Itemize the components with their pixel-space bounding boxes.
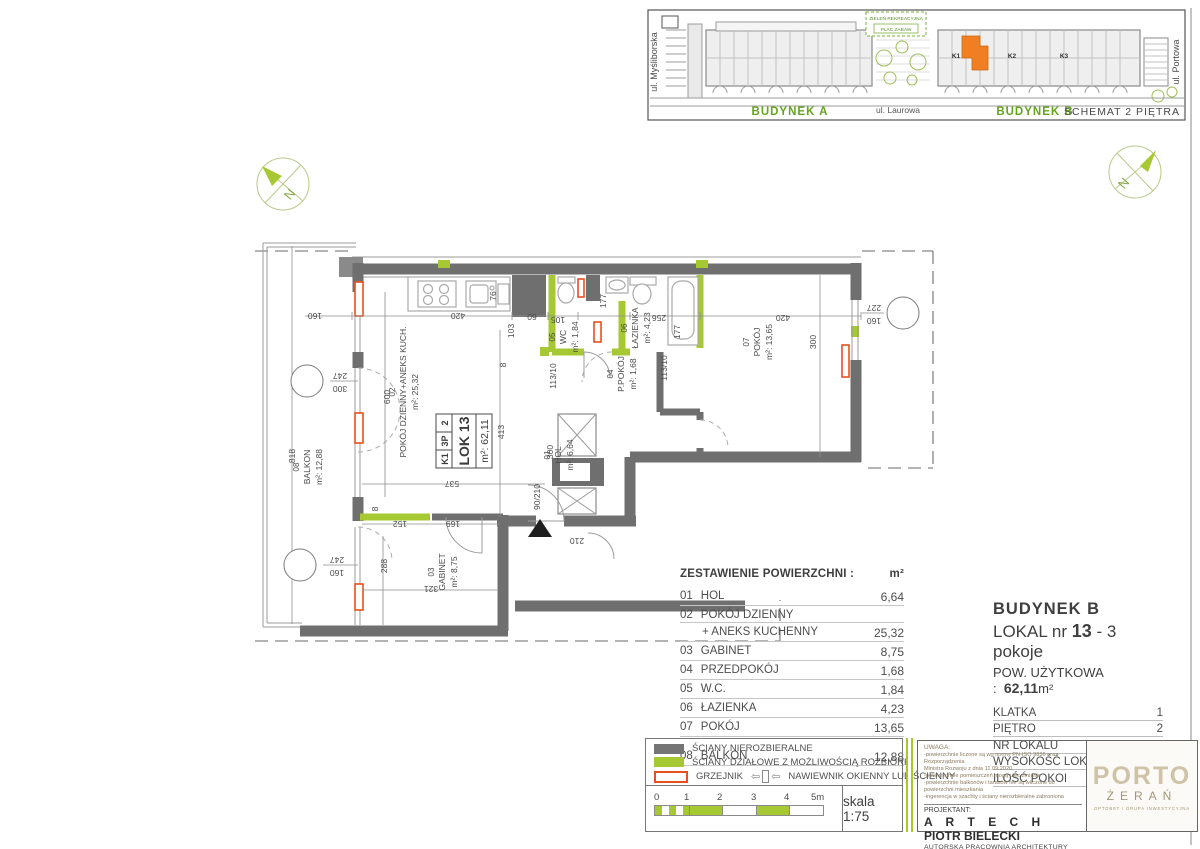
logo-line2: ŻERAŃ (1107, 789, 1178, 803)
radiator (578, 279, 584, 297)
dim-label: 152 (393, 519, 407, 529)
radiator-swatch (654, 771, 688, 783)
stair-label-k3: K3 (1060, 53, 1069, 60)
title-block: UWAGA: -powierzchnie liczone są wg normy… (917, 740, 1198, 832)
legend-item: GRZEJNIK ⇦⇦ NAWIEWNIK OKIENNY LUB ŚCIENN… (654, 770, 896, 783)
radiator (842, 345, 849, 377)
svg-text:GABINET: GABINET (437, 553, 447, 590)
north-letter: N (281, 186, 299, 203)
projektant-section: PROJEKTANT: A R T E C H PIOTR BIELECKI A… (924, 804, 1082, 849)
uwaga-line: -powierzchnie pomieszczeń mogą ulec zmia… (924, 773, 1082, 780)
street-left-label: ul. Myśliborska (649, 32, 659, 92)
logo-tagline: OPTOBET I GRUPA INWESTYCYJNA (1094, 806, 1190, 811)
scale-segments (654, 805, 824, 816)
green-divider (906, 738, 913, 832)
scale-bar: 0 1 2 3 4 5m skala 1:75 (645, 785, 903, 832)
kitchen-shaft (512, 275, 546, 317)
info-row: PIĘTRO2 (993, 721, 1163, 738)
marker-bottom: 160 (330, 568, 344, 578)
svg-text:06: 06 (620, 323, 629, 332)
svg-text:POKÓJ: POKÓJ (752, 328, 762, 357)
schemat-label: SCHEMAT 2 PIĘTRA (1064, 106, 1180, 118)
dim-label: 177 (598, 294, 608, 308)
dim-label: 113/10 (659, 355, 669, 381)
svg-text:08: 08 (292, 462, 301, 471)
dim-label: 288 (379, 559, 389, 573)
radiator (355, 584, 363, 610)
title-block-text: UWAGA: -powierzchnie liczone są wg normy… (918, 741, 1086, 831)
marker-top: 247 (333, 371, 347, 381)
dim-label: 90/210 (532, 484, 542, 510)
scale-graphic: 0 1 2 3 4 5m (646, 786, 842, 831)
dim-label: 169 (446, 519, 460, 529)
svg-text:02: 02 (388, 387, 397, 396)
wall-green-swatch (654, 757, 684, 767)
svg-text:m²: 1,68: m²: 1,68 (628, 358, 638, 389)
stair-label-k1: K1 (952, 53, 961, 60)
svg-text:m²: 25,32: m²: 25,32 (410, 374, 420, 410)
info-row: KLATKA1 (993, 704, 1163, 721)
table-row: + ANEKS KUCHENNY25,32 (680, 623, 904, 642)
svg-text:P.POKÓJ: P.POKÓJ (616, 356, 626, 392)
uwaga-line: Ministra Rozwoju z dnia 11.09.2020, (924, 766, 1082, 773)
area-table: ZESTAWIENIE POWIERZCHNI : m² 01HOL6,64 0… (680, 568, 904, 766)
radiator (355, 282, 363, 316)
north-compass-left: N (257, 158, 309, 210)
marker-bottom: 160 (867, 316, 881, 326)
svg-text:m²: 6,64: m²: 6,64 (565, 439, 575, 470)
card-k: K1 (440, 453, 450, 465)
dim-label: 321 (424, 584, 438, 594)
nawiewnik-icon: ⇦⇦ (751, 770, 780, 783)
site-building-a (706, 22, 872, 93)
info-building: BUDYNEK B (993, 600, 1163, 619)
uwaga-line: -powierzchnie balkonów i tarasów nie są … (924, 780, 1082, 794)
dim-label: 60 (527, 312, 537, 322)
room-label-living: 02 POKÓJ DZIENNY+ANEKS KUCH. m²: 25,32 (388, 326, 420, 457)
developer-logo: PORTO ŻERAŃ OPTOBET I GRUPA INWESTYCYJNA (1086, 741, 1197, 831)
svg-text:m²: 12,88: m²: 12,88 (314, 449, 324, 485)
plan-sheet: ZIELEŃ REKREACYJNA PLAC ZABAW K1 K2 K3 u… (0, 0, 1200, 849)
dim-label: 537 (445, 479, 459, 489)
legend: ŚCIANY NIEROZBIERALNE ŚCIANY DZIAŁOWE Z … (645, 738, 903, 785)
stair-label-k2: K2 (1008, 53, 1017, 60)
north-compass-right: N (1109, 146, 1161, 198)
svg-text:07: 07 (742, 337, 751, 346)
building-b-label: BUDYNEK B (996, 106, 1073, 118)
card-lok: LOK 13 (456, 416, 472, 465)
dim-label: 210 (570, 536, 584, 546)
site-green-area: ZIELEŃ REKREACYJNA PLAC ZABAW (866, 12, 926, 36)
uwaga-line: -ingerencja w szachty i ściany nierozbie… (924, 794, 1082, 801)
card-type: 3P (440, 435, 450, 446)
radiator (355, 413, 363, 443)
projektant-label: PROJEKTANT: (924, 807, 1082, 814)
dim-label: 256 (652, 313, 666, 323)
svg-text:m²: 13,65: m²: 13,65 (764, 324, 774, 360)
dim-label: 105 (551, 315, 565, 325)
unit-card: K1 3P 2 LOK 13 m²: 62,11 (436, 414, 492, 468)
svg-text:HOL: HOL (553, 446, 563, 464)
dim-label: 413 (496, 425, 506, 439)
svg-text:01: 01 (543, 450, 552, 459)
marker-top: 227 (867, 303, 881, 313)
svg-text:WC: WC (558, 330, 568, 344)
wall-gray-swatch (654, 744, 684, 754)
area-table-title: ZESTAWIENIE POWIERZCHNI : (680, 568, 854, 580)
green-area-line1: ZIELEŃ REKREACYJNA (869, 15, 923, 22)
area-table-unit: m² (890, 568, 904, 580)
svg-text:04: 04 (606, 369, 615, 378)
table-row: 01HOL6,64 (680, 587, 904, 606)
dim-label: 420 (776, 313, 790, 323)
dim-label: 113/10 (548, 363, 558, 389)
dim-label: 8 (370, 506, 380, 511)
dim-label: 160 (308, 311, 322, 321)
building-a-label: BUDYNEK A (752, 106, 829, 118)
scale-ticks: 0 1 2 3 4 5m (654, 792, 842, 804)
legend-item: ŚCIANY DZIAŁOWE Z MOŻLIWOŚCIĄ ROZBIÓRKI (654, 757, 896, 768)
dim-label: 420 (451, 311, 465, 321)
green-area-line2: PLAC ZABAW (881, 27, 912, 33)
table-row: 02POKÓJ DZIENNY (680, 606, 904, 623)
dim-label: 103 (506, 324, 516, 338)
dim-label: 177 (672, 325, 682, 339)
architect-name: A R T E C H PIOTR BIELECKI (924, 815, 1082, 843)
wc-fixtures (558, 277, 575, 303)
svg-text:BALKON: BALKON (302, 450, 312, 485)
scale-label: skala 1:75 (842, 786, 902, 831)
dim-label: 76 (488, 291, 498, 301)
north-letter: N (1115, 175, 1133, 192)
svg-text:05: 05 (548, 332, 557, 341)
svg-text:03: 03 (427, 567, 436, 576)
window-marker: 247 160 (284, 549, 344, 581)
table-row: 06ŁAZIENKA4,23 (680, 699, 904, 718)
marker-bottom: 300 (333, 384, 347, 394)
uwaga-line: -powierzchnie liczone są wg normy PN-ISO… (924, 752, 1082, 766)
dim-label: 8 (498, 362, 508, 367)
table-row: 05W.C.1,84 (680, 680, 904, 699)
room-label-pokoj: 07 POKÓJ m²: 13,65 (742, 324, 774, 360)
logo-line1: PORTO (1093, 762, 1191, 791)
card-area: m²: 62,11 (479, 419, 491, 463)
window-marker: 247 300 (291, 365, 347, 397)
area-table-header: ZESTAWIENIE POWIERZCHNI : m² (680, 568, 904, 580)
table-row: 07POKÓJ13,65 (680, 718, 904, 737)
svg-text:ŁAZIENKA: ŁAZIENKA (630, 307, 640, 348)
window-marker: 227 160 (867, 297, 919, 329)
legend-item: ŚCIANY NIEROZBIERALNE (654, 743, 896, 754)
info-lokal-line: LOKAL nr 13 - 3 pokoje (993, 621, 1163, 662)
room-label-przedpokoj: 04 P.POKÓJ m²: 1,68 (606, 356, 638, 392)
svg-text:m²: 8,75: m²: 8,75 (449, 556, 459, 587)
dim-label: 818 (287, 449, 297, 463)
site-plan: ZIELEŃ REKREACYJNA PLAC ZABAW K1 K2 K3 u… (648, 10, 1185, 120)
studio-name: AUTORSKA PRACOWNIA ARCHITEKTURY (924, 844, 1082, 849)
svg-text:m²: 1,84: m²: 1,84 (570, 321, 580, 352)
uwaga-title: UWAGA: (924, 744, 1082, 751)
table-row: 04PRZEDPOKÓJ1,68 (680, 661, 904, 680)
marker-top: 247 (330, 555, 344, 565)
info-area-line: POW. UŻYTKOWA : 62,11m² (993, 665, 1163, 696)
radiators (355, 279, 849, 610)
dim-label: 300 (808, 335, 818, 349)
radiator (594, 322, 601, 342)
street-right-label: ul. Portowa (1171, 39, 1181, 84)
svg-text:POKÓJ DZIENNY+ANEKS KUCH.: POKÓJ DZIENNY+ANEKS KUCH. (398, 326, 408, 457)
svg-text:m²: 4,23: m²: 4,23 (642, 312, 652, 343)
street-bottom-label: ul. Laurowa (876, 105, 920, 115)
table-row: 03GABINET8,75 (680, 642, 904, 661)
vent-box (498, 284, 509, 304)
card-floor: 2 (440, 420, 450, 425)
